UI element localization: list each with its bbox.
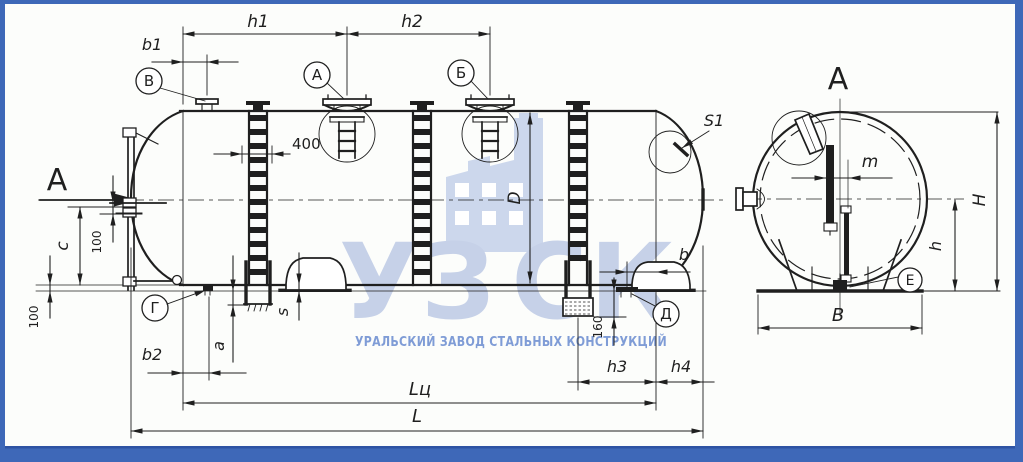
dim-160-label: 160 — [591, 316, 605, 339]
watermark-logo-left: УЗ — [339, 221, 497, 343]
drawing-canvas: УЗ СК УРАЛЬСКИЙ ЗАВОД СТАЛЬНЫХ КОНСТРУКЦ… — [0, 0, 1023, 462]
dim-S1-label: S1 — [704, 111, 724, 130]
dim-L-label: L — [412, 406, 422, 427]
dim-b1-label: b1 — [142, 35, 162, 54]
dim-h-label: h — [926, 241, 945, 251]
mark-g-letter: Г — [150, 299, 159, 317]
dim-h3-label: h3 — [607, 357, 627, 376]
dim-m-label: m — [862, 152, 879, 172]
dim-h4-label: h4 — [671, 357, 691, 376]
dim-Lc-label: Lц — [409, 379, 431, 400]
drawing-page: УЗ СК УРАЛЬСКИЙ ЗАВОД СТАЛЬНЫХ КОНСТРУКЦ… — [0, 0, 1023, 462]
dim-100-lower-label: 100 — [27, 306, 41, 329]
dim-H-label: H — [970, 193, 990, 206]
mark-e-letter: Е — [906, 273, 915, 289]
dim-b-label: b — [679, 245, 689, 264]
dim-400-label: 400 — [292, 135, 321, 153]
dim-D-label: D — [505, 191, 525, 204]
dim-100-upper-label: 100 — [90, 231, 104, 254]
dim-B-label: B — [832, 305, 844, 326]
saddle-left — [286, 258, 346, 290]
mark-d-letter: Д — [660, 305, 672, 323]
dim-h2-label: h2 — [401, 12, 423, 32]
section-view-title: А — [828, 62, 849, 97]
section-cut-letter: А — [47, 163, 68, 198]
dim-a-label: a — [209, 341, 228, 351]
dim-b2-label: b2 — [142, 345, 162, 364]
watermark-subtitle: УРАЛЬСКИЙ ЗАВОД СТАЛЬНЫХ КОНСТРУКЦИЙ — [355, 333, 667, 350]
dim-c-label: c — [53, 241, 73, 251]
saddle-right — [632, 262, 690, 290]
section-bottom-nozzle — [833, 280, 847, 290]
mark-v-letter: В — [144, 72, 154, 90]
mark-b-letter: Б — [456, 64, 466, 82]
mark-a-letter: А — [312, 66, 323, 84]
dim-h1-label: h1 — [247, 12, 269, 32]
dim-s-label: s — [273, 308, 292, 316]
